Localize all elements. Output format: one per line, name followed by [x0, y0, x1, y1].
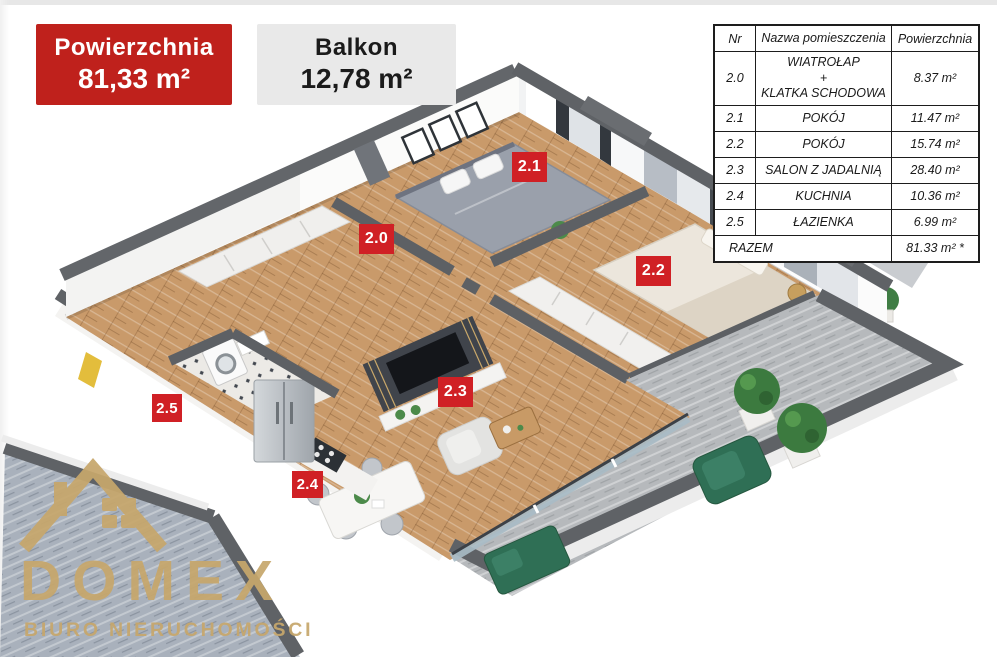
- logo-name: DOMEX: [20, 549, 284, 613]
- table-row: 2.3 SALON Z JADALNIĄ 28.40 m²: [715, 158, 978, 184]
- room-label-2-5: 2.5: [152, 394, 182, 422]
- total-label: RAZEM: [715, 236, 892, 261]
- yellow-accent-wall: [78, 352, 102, 388]
- total-area-value: 81,33 m²: [78, 63, 190, 95]
- floor-plan-page: 2.0 2.1 2.2 2.3 2.4 2.5 Powierzchnia 81,…: [0, 0, 997, 657]
- row-name: KUCHNIA: [756, 184, 892, 209]
- row-name: ŁAZIENKA: [756, 210, 892, 235]
- row-name: WIATROŁAP + KLATKA SCHODOWA: [756, 52, 892, 105]
- total-area-badge: Powierzchnia 81,33 m²: [36, 24, 232, 105]
- row-area: 11.47 m²: [892, 106, 978, 131]
- row-nr: 2.0: [715, 52, 756, 105]
- logo-house-icon: [24, 468, 162, 548]
- room-label-2-0: 2.0: [359, 224, 394, 254]
- rooms-table-header: Nr Nazwa pomieszczenia Powierzchnia: [715, 26, 978, 52]
- room-label-2-3: 2.3: [438, 377, 473, 407]
- total-area: 81.33 m² *: [892, 236, 978, 261]
- logo-tagline: BIURO NIERUCHOMOŚCI: [24, 617, 313, 641]
- row-name: POKÓJ: [756, 132, 892, 157]
- row-name: SALON Z JADALNIĄ: [756, 158, 892, 183]
- row-area: 28.40 m²: [892, 158, 978, 183]
- room-label-2-2: 2.2: [636, 256, 671, 286]
- table-total-row: RAZEM 81.33 m² *: [715, 236, 978, 261]
- row-name: POKÓJ: [756, 106, 892, 131]
- row-nr: 2.3: [715, 158, 756, 183]
- row-area: 10.36 m²: [892, 184, 978, 209]
- row-area: 8.37 m²: [892, 52, 978, 105]
- table-row: 2.1 POKÓJ 11.47 m²: [715, 106, 978, 132]
- balcony-area-badge: Balkon 12,78 m²: [257, 24, 456, 105]
- table-row: 2.0 WIATROŁAP + KLATKA SCHODOWA 8.37 m²: [715, 52, 978, 106]
- agency-logo: DOMEX BIURO NIERUCHOMOŚCI: [10, 452, 340, 657]
- header-name: Nazwa pomieszczenia: [756, 26, 892, 51]
- table-row: 2.5 ŁAZIENKA 6.99 m²: [715, 210, 978, 236]
- fridge: [254, 380, 314, 462]
- rooms-table: Nr Nazwa pomieszczenia Powierzchnia 2.0 …: [713, 24, 980, 263]
- room-label-2-1: 2.1: [512, 152, 547, 182]
- row-nr: 2.1: [715, 106, 756, 131]
- row-nr: 2.2: [715, 132, 756, 157]
- row-area: 6.99 m²: [892, 210, 978, 235]
- total-area-label: Powierzchnia: [54, 34, 213, 62]
- header-nr: Nr: [715, 26, 756, 51]
- row-area: 15.74 m²: [892, 132, 978, 157]
- table-row: 2.4 KUCHNIA 10.36 m²: [715, 184, 978, 210]
- row-nr: 2.4: [715, 184, 756, 209]
- row-nr: 2.5: [715, 210, 756, 235]
- balcony-area-value: 12,78 m²: [300, 63, 412, 95]
- header-area: Powierzchnia: [892, 26, 978, 51]
- table-row: 2.2 POKÓJ 15.74 m²: [715, 132, 978, 158]
- balcony-area-label: Balkon: [315, 34, 398, 62]
